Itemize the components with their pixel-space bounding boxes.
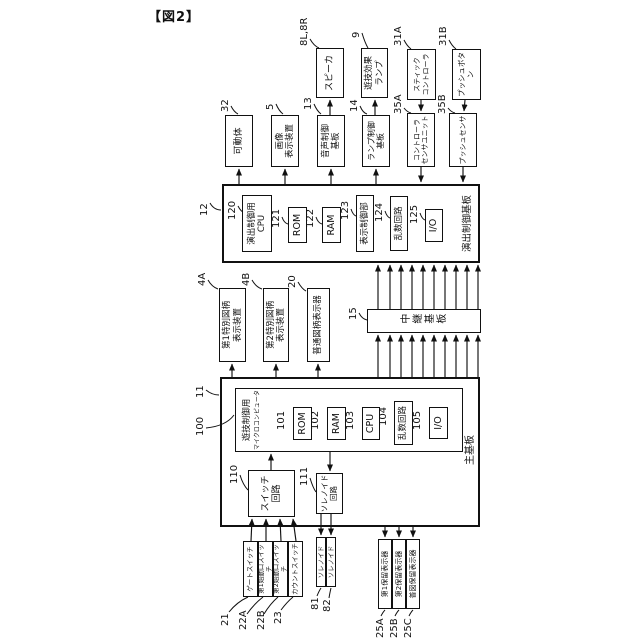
movable-body-box: 可動体 <box>225 115 253 167</box>
ref-82: 82 <box>322 599 333 612</box>
ref-102: 102 <box>310 411 321 430</box>
count-switch-box: カウントスイッチ <box>288 541 303 597</box>
ref-8l8r: 8L,8R <box>299 18 310 46</box>
microcomputer-label-line1: 遊技制御用 <box>240 389 252 451</box>
push-sensor-box: プッシュセンサ <box>449 113 477 167</box>
ref-11: 11 <box>195 385 206 398</box>
ref-123: 123 <box>340 201 351 220</box>
ref-111: 111 <box>299 467 310 486</box>
ref-35a: 35A <box>393 94 404 114</box>
solenoid-circuit-box: ソレノイド 回路 <box>316 473 343 514</box>
start-switch-2-box: 第2始動口スイッチ <box>273 541 288 597</box>
main-io-box: I/O <box>429 407 448 439</box>
ref-32: 32 <box>220 99 231 112</box>
push-button-box: プッシュボタン <box>452 49 481 100</box>
ref-22a: 22A <box>238 610 249 630</box>
ref-15: 15 <box>348 307 359 320</box>
ref-4a: 4A <box>197 273 208 286</box>
effect-control-board-label: 演出制御基板 <box>459 186 473 261</box>
ref-13: 13 <box>303 97 314 110</box>
rotated-diagram-canvas: 演出制御用 CPU ROM RAM 表示制御部 乱数回路 I/O 演出制御基板 … <box>0 0 640 640</box>
ref-110: 110 <box>229 465 240 484</box>
normal-symbol-display-box: 普通図柄表示器 <box>307 288 330 362</box>
solenoid-1-box: ソレノイド <box>316 537 326 587</box>
ref-104: 104 <box>378 407 389 426</box>
effect-io-box: I/O <box>425 209 443 242</box>
ref-121: 121 <box>271 209 282 228</box>
ref-124: 124 <box>374 203 385 222</box>
special-symbol-display-1-box: 第1特別図柄 表示装置 <box>219 288 246 362</box>
ref-105: 105 <box>412 411 423 430</box>
patent-figure-page: { "figure_label": "【図2】", "boards": { "e… <box>0 0 640 640</box>
ref-35b: 35B <box>437 94 448 114</box>
lamp-control-board-box: ランプ制御 基板 <box>362 115 390 167</box>
solenoid-2-box: ソレノイド <box>326 537 336 587</box>
ref-14: 14 <box>349 99 360 112</box>
switch-circuit-box: スイッチ 回路 <box>248 470 295 517</box>
normal-hold-display-box: 普図保留表示器 <box>406 539 420 609</box>
main-ram-box: RAM <box>327 407 346 440</box>
ref-25a: 25A <box>375 618 386 638</box>
ref-20: 20 <box>287 275 298 288</box>
special-symbol-display-2-box: 第2特別図柄 表示装置 <box>263 288 289 362</box>
main-random-circuit-box: 乱数回路 <box>394 401 413 445</box>
effect-cpu-box: 演出制御用 CPU <box>242 195 272 252</box>
ref-31a: 31A <box>393 26 404 46</box>
sound-control-board-box: 音声制御 基板 <box>317 115 345 167</box>
ref-9: 9 <box>351 32 362 38</box>
ref-103: 103 <box>345 411 356 430</box>
effect-random-circuit-box: 乱数回路 <box>390 196 408 251</box>
ref-122: 122 <box>305 209 316 228</box>
ref-25b: 25B <box>389 618 400 638</box>
microcomputer-label: 遊技制御用 マイクロコンピュータ <box>240 389 261 451</box>
ref-125: 125 <box>409 205 420 224</box>
display-control-box: 表示制御部 <box>356 195 374 252</box>
ref-81: 81 <box>310 597 321 610</box>
controller-sensor-unit-box: コントローラ センサユニット <box>407 113 435 167</box>
ref-23: 23 <box>273 611 284 624</box>
ref-21: 21 <box>220 613 231 626</box>
ref-4b: 4B <box>241 273 252 286</box>
ref-12: 12 <box>199 203 210 216</box>
ref-101: 101 <box>276 411 287 430</box>
ref-100: 100 <box>195 417 206 436</box>
ref-22b: 22B <box>256 610 267 630</box>
effect-ram-box: RAM <box>322 207 341 243</box>
ref-31b: 31B <box>438 26 449 46</box>
ref-120: 120 <box>227 201 238 220</box>
relay-board-box: 中継基板 <box>367 309 481 333</box>
main-board-label: 主基板 <box>461 420 476 480</box>
speaker-box: スピーカ <box>316 48 344 98</box>
hold-display-2-box: 第2保留表示器 <box>392 539 406 609</box>
ref-25c: 25C <box>403 618 414 638</box>
start-switch-1-box: 第1始動口スイッチ <box>258 541 273 597</box>
effect-lamp-box: 遊技効果 ランプ <box>361 48 388 98</box>
stick-controller-box: スティック コントローラ <box>407 49 436 100</box>
ref-5: 5 <box>265 104 276 110</box>
gate-switch-box: ゲートスイッチ <box>243 541 258 597</box>
image-display-box: 画像 表示装置 <box>271 115 299 167</box>
hold-display-1-box: 第1保留表示器 <box>378 539 392 609</box>
microcomputer-label-line2: マイクロコンピュータ <box>252 389 261 451</box>
